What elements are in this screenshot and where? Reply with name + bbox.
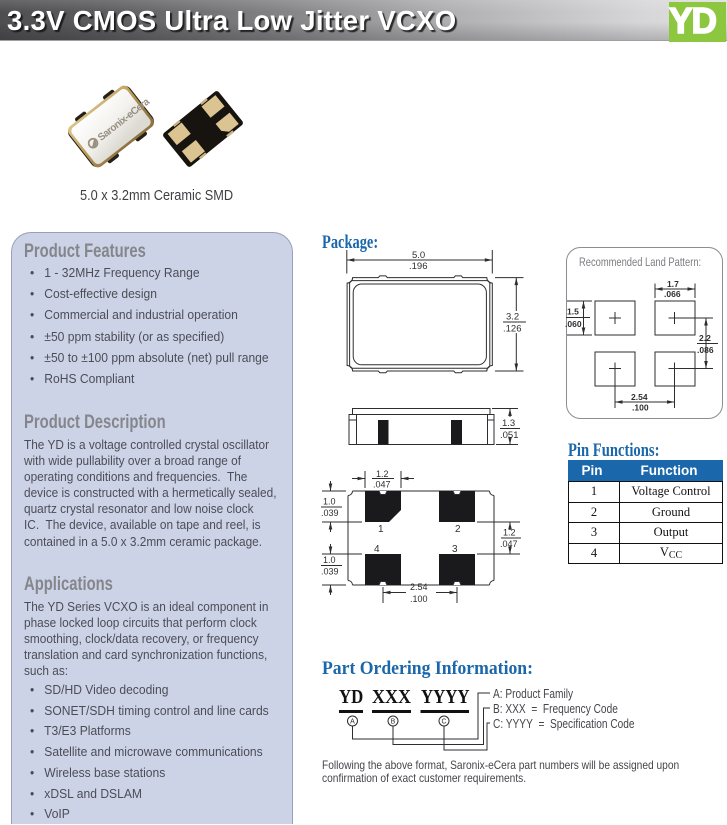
svg-text:Recommended Land Pattern:: Recommended Land Pattern: — [579, 256, 701, 269]
svg-text:B: B — [391, 719, 396, 726]
svg-text:4: 4 — [374, 544, 380, 555]
svg-text:5.0: 5.0 — [412, 250, 425, 261]
svg-text:.039: .039 — [321, 508, 339, 518]
svg-text:3.2: 3.2 — [506, 312, 519, 323]
svg-text:1.2: 1.2 — [376, 469, 389, 479]
svg-text:2.54: 2.54 — [410, 582, 428, 592]
svg-text:1.0: 1.0 — [323, 497, 336, 507]
svg-text:A: A — [350, 719, 355, 726]
svg-text:1.7: 1.7 — [667, 279, 679, 289]
svg-text:.126: .126 — [503, 324, 522, 335]
svg-text:1.5: 1.5 — [567, 307, 579, 317]
svg-text:.066: .066 — [664, 289, 681, 299]
svg-text:.086: .086 — [697, 345, 714, 355]
svg-text:.047: .047 — [373, 480, 391, 490]
svg-text:1: 1 — [378, 524, 384, 535]
svg-text:C: C — [441, 719, 446, 726]
svg-text:.047: .047 — [500, 539, 518, 549]
svg-text:.100: .100 — [632, 403, 649, 413]
svg-text:2.54: 2.54 — [631, 392, 648, 402]
svg-text:1.0: 1.0 — [323, 555, 336, 565]
svg-text:2: 2 — [455, 524, 461, 535]
svg-text:1.2: 1.2 — [503, 528, 516, 538]
svg-text:.100: .100 — [410, 594, 428, 604]
svg-text:1.3: 1.3 — [502, 418, 515, 429]
svg-text:.060: .060 — [565, 319, 582, 329]
svg-text:2.2: 2.2 — [699, 333, 711, 343]
svg-text:.196: .196 — [409, 261, 428, 272]
svg-text:.051: .051 — [500, 430, 519, 441]
svg-text:3: 3 — [452, 544, 458, 555]
svg-text:.039: .039 — [321, 567, 339, 577]
